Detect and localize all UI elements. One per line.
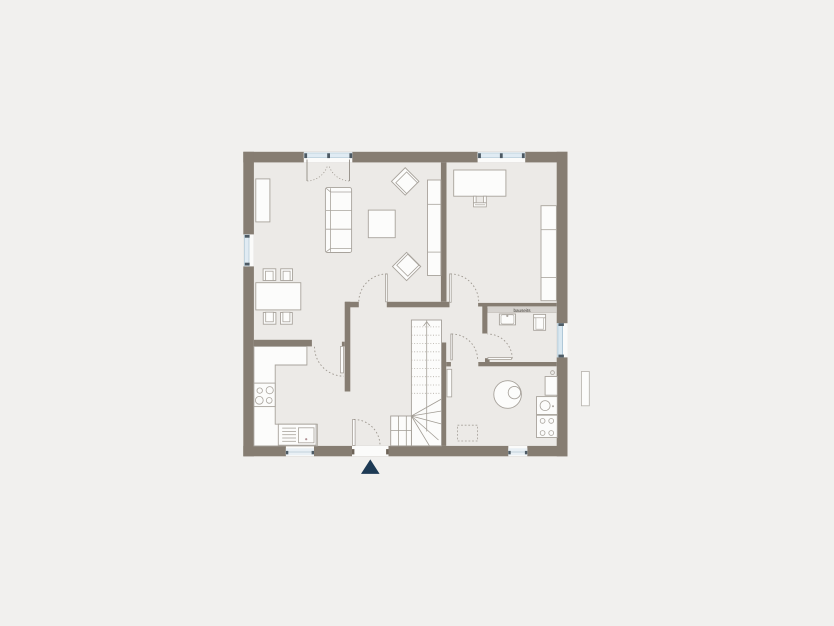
- svg-text:bauseits: bauseits: [513, 308, 531, 313]
